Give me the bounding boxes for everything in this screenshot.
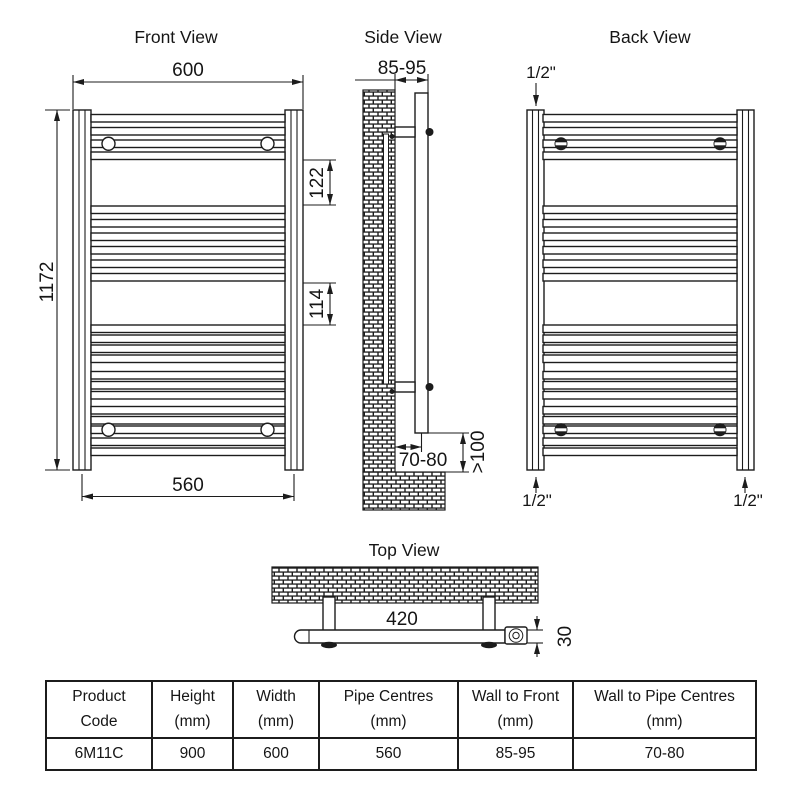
front-upper-gap-label: 122	[307, 167, 328, 199]
front-radiator-body	[73, 110, 303, 470]
side-radiator-tube	[415, 93, 428, 433]
back-connection-bottom-right-label: 1/2"	[733, 491, 763, 510]
front-pipe-centres-label: 560	[172, 475, 204, 496]
header-height: Height (mm)	[152, 681, 233, 738]
top-depth-label: 30	[555, 626, 576, 647]
side-floor	[363, 472, 445, 510]
header-wall-to-front: Wall to Front (mm)	[458, 681, 573, 738]
side-view: Side View 85-95 70-80	[355, 27, 489, 510]
spec-table-data-row: 6M11C 900 600 560 85-95 70-80	[46, 738, 756, 770]
front-tube-rows	[91, 115, 285, 456]
back-view-title: Back View	[609, 27, 691, 47]
side-floor-clearance-label: >100	[468, 431, 489, 474]
cell-wall-to-pipe-centres: 70-80	[573, 738, 756, 770]
header-pipe-centres: Pipe Centres (mm)	[319, 681, 458, 738]
front-view: Front View 600 1172	[37, 27, 336, 501]
front-width-label: 600	[172, 60, 204, 81]
cell-pipe-centres: 560	[319, 738, 458, 770]
spec-table: Product Code Height (mm) Width (mm) Pipe…	[45, 680, 757, 771]
cell-wall-to-front: 85-95	[458, 738, 573, 770]
back-connection-top-left: 1/2"	[526, 63, 556, 106]
front-lower-gap-dimension: 114	[303, 283, 336, 325]
cell-height: 900	[152, 738, 233, 770]
spec-table-grid: Product Code Height (mm) Width (mm) Pipe…	[45, 680, 757, 771]
spec-table-header-row: Product Code Height (mm) Width (mm) Pipe…	[46, 681, 756, 738]
back-radiator-body	[527, 110, 754, 470]
back-connection-bottom-left: 1/2"	[522, 477, 552, 510]
front-view-title: Front View	[134, 27, 218, 47]
top-depth-dimension: 30	[527, 616, 576, 657]
back-connection-bottom-left-label: 1/2"	[522, 491, 552, 510]
back-connection-top-left-label: 1/2"	[526, 63, 556, 82]
front-height-label: 1172	[37, 262, 58, 303]
side-pipe	[384, 134, 389, 384]
header-wall-to-pipe-centres: Wall to Pipe Centres (mm)	[573, 681, 756, 738]
front-height-dimension: 1172	[37, 110, 70, 470]
side-wall-to-front-label: 85-95	[378, 58, 427, 79]
side-wall	[363, 90, 395, 472]
top-bracket-centres-label: 420	[386, 609, 418, 630]
side-wall-to-pipe-dimension: 70-80	[395, 433, 447, 471]
front-lower-gap-label: 114	[307, 288, 328, 319]
header-product-code: Product Code	[46, 681, 152, 738]
front-pipe-centres-dimension: 560	[82, 474, 294, 501]
back-view: Back View 1/2"	[522, 27, 763, 510]
side-wall-to-front-dimension: 85-95	[355, 58, 428, 93]
back-connection-bottom-right: 1/2"	[733, 477, 763, 510]
front-upper-gap-dimension: 122	[303, 160, 336, 205]
back-tube-rows	[543, 115, 737, 456]
header-width: Width (mm)	[233, 681, 319, 738]
top-valve	[505, 627, 527, 644]
top-radiator-tube	[295, 627, 528, 648]
cell-width: 600	[233, 738, 319, 770]
top-wall	[272, 567, 538, 603]
side-view-title: Side View	[364, 27, 442, 47]
side-wall-to-pipe-label: 70-80	[399, 450, 448, 471]
top-view-title: Top View	[369, 540, 440, 560]
front-width-dimension: 600	[73, 60, 303, 109]
top-view: Top View 420 30	[272, 540, 576, 657]
cell-product-code: 6M11C	[46, 738, 152, 770]
